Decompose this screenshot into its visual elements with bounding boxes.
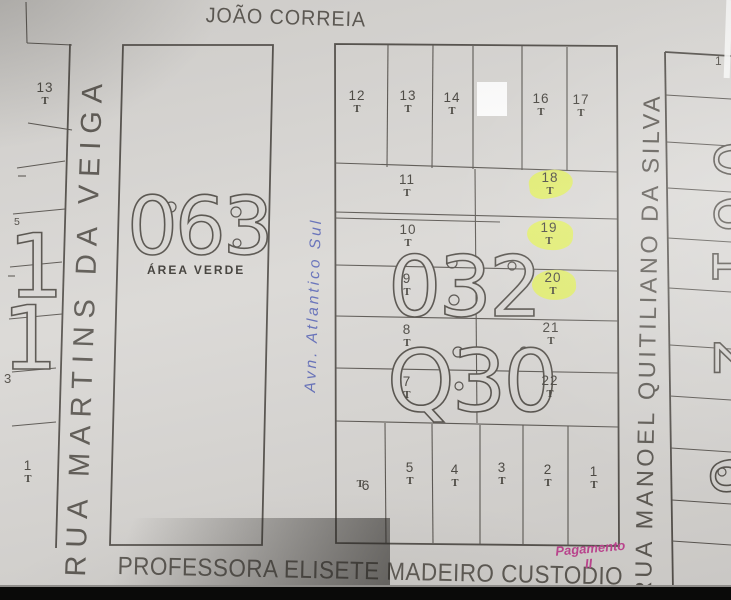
left-strip-lot-5: 5: [14, 216, 20, 228]
lot-21: 21T: [542, 321, 559, 347]
lot-20: 20T: [544, 271, 561, 297]
lot-6: T6: [357, 476, 370, 494]
lot-3: 3T: [498, 461, 507, 487]
lot-19: 19T: [540, 221, 557, 247]
right-big-digit-2: 2: [699, 338, 731, 376]
lot-8: 8T: [403, 323, 412, 349]
lot-12: 12T: [348, 89, 365, 115]
right-big-digit-0: 0: [700, 140, 731, 175]
lot-1: 1T: [590, 465, 599, 491]
lot-13: 13T: [399, 89, 416, 115]
lot-9: 9T: [403, 272, 412, 298]
lot-5: 5T: [406, 461, 415, 487]
right-big-digit-6b: 6: [696, 455, 731, 493]
lot-22: 22T: [541, 374, 558, 400]
lot-4: 4T: [451, 463, 460, 489]
street-top-joao-correia: JOÃO CORREIA: [205, 4, 366, 32]
lot-7: 7T: [403, 375, 412, 401]
right-big-digit-1: 1: [698, 246, 731, 281]
lot-11: 11T: [399, 173, 415, 199]
right-big-digit-6a: 6: [700, 194, 731, 229]
white-redaction-box: [477, 82, 507, 116]
area-verde-label: ÁREA VERDE: [147, 263, 243, 277]
lot-14: 14T: [443, 91, 460, 117]
left-strip-lot-1: 1T: [24, 459, 33, 485]
left-strip-lot-3: 3: [4, 371, 11, 386]
right-strip-lines: [665, 52, 731, 592]
block-number-063: 063: [127, 180, 271, 273]
green-area-block: [110, 45, 273, 545]
lot-18: 18T: [541, 171, 558, 197]
block-number-q30: Q30: [387, 332, 555, 432]
lot-17: 17T: [572, 93, 589, 119]
pink-note-line2: II: [584, 556, 593, 572]
handwritten-note-pink: Pagamento II: [555, 539, 621, 574]
right-strip-lot-1: 1: [715, 54, 722, 68]
plat-map-photo: 063 032 Q30 1 1 0 6 1 2 6 JOÃO CORREIA R…: [0, 0, 731, 600]
lot-10: 10T: [399, 223, 416, 249]
lot-2: 2T: [544, 463, 553, 489]
lot-16: 16T: [532, 92, 549, 118]
bottom-black-bar: [0, 585, 731, 600]
left-strip-lot-13: 13T: [36, 81, 53, 107]
